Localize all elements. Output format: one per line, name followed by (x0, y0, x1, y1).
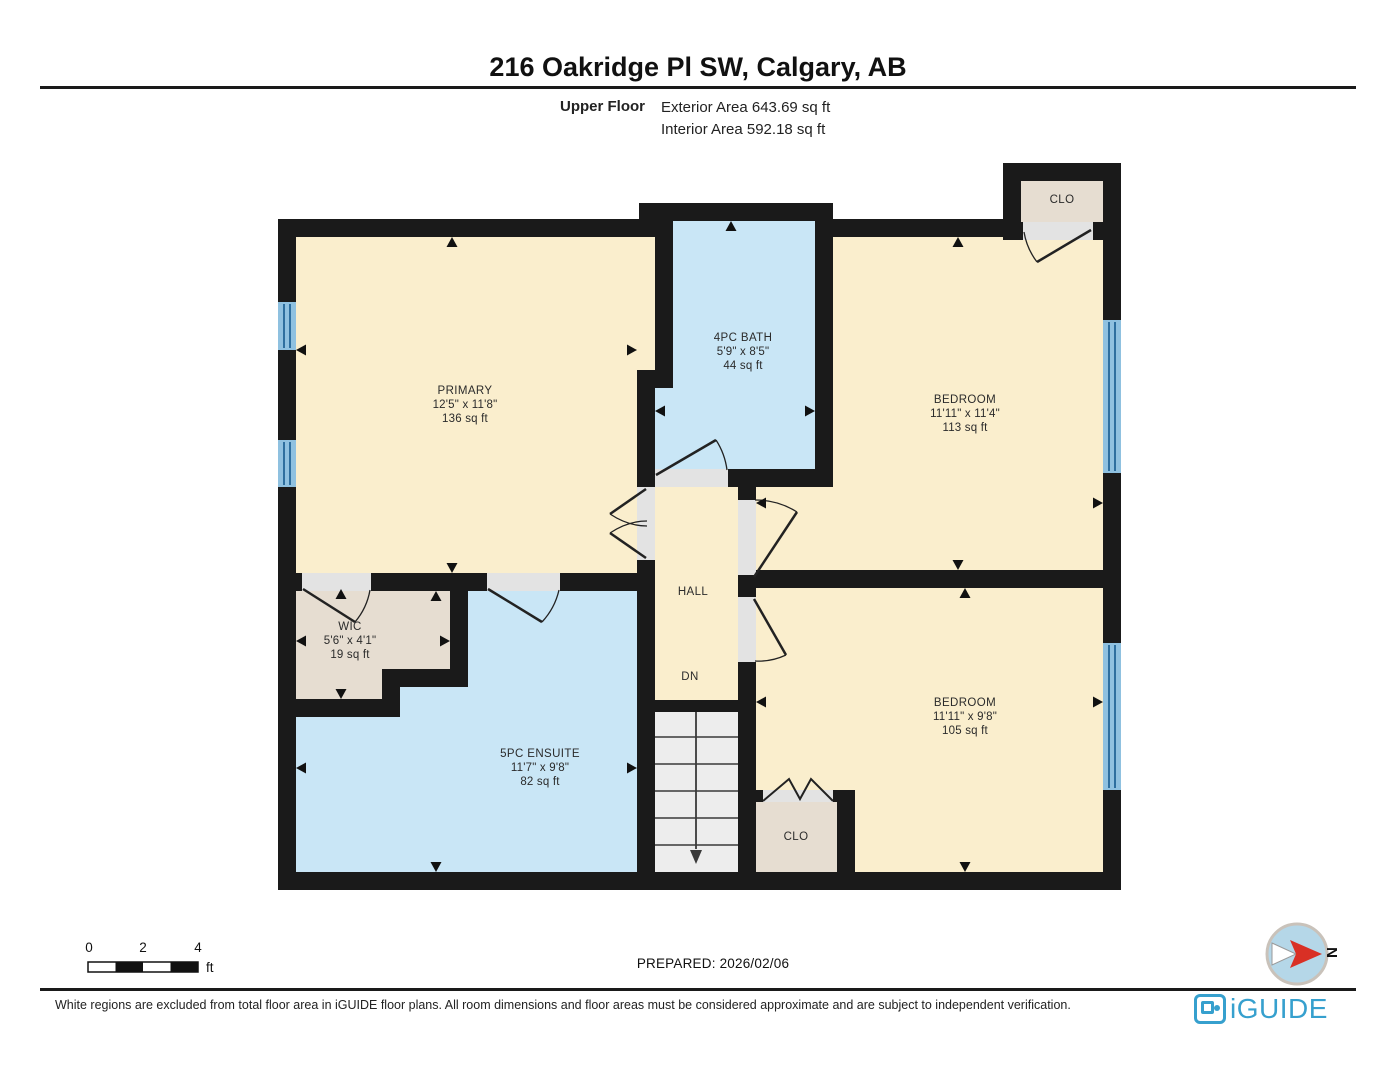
scale-tick-2: 2 (139, 940, 147, 955)
window-icon (278, 302, 296, 350)
closet-top-label: CLO (1050, 194, 1075, 206)
compass-icon (1267, 924, 1327, 984)
scale-tick-0: 0 (85, 940, 93, 955)
staircase (655, 700, 738, 872)
scale-bar (88, 962, 198, 972)
floor-plan-drawing (0, 0, 1396, 1080)
window-icon (1103, 320, 1121, 473)
floor-plan-page: 216 Oakridge Pl SW, Calgary, AB Upper Fl… (0, 0, 1396, 1080)
room-label-primary: PRIMARY12'5" x 11'8"136 sq ft (433, 384, 498, 426)
compass-north-label: N (1323, 947, 1340, 958)
window-icon (278, 440, 296, 487)
camera-icon (1194, 994, 1226, 1024)
closet-bottom-label: CLO (784, 831, 809, 843)
room-label-wic: WIC5'6" x 4'1"19 sq ft (324, 620, 376, 662)
prepared-date: PREPARED: 2026/02/06 (637, 956, 789, 971)
brand-logo: iGUIDE (1194, 993, 1328, 1025)
room-label-bedroom-1: BEDROOM11'11" x 11'4"113 sq ft (930, 393, 1000, 435)
window-icon (1103, 643, 1121, 790)
scale-tick-4: 4 (194, 940, 202, 955)
room-label-bath: 4PC BATH5'9" x 8'5"44 sq ft (714, 331, 773, 373)
footer-divider (40, 988, 1356, 991)
hall-label: HALL (678, 586, 708, 598)
brand-name: iGUIDE (1230, 993, 1328, 1025)
room-label-ensuite: 5PC ENSUITE11'7" x 9'8"82 sq ft (500, 747, 580, 789)
room-label-bedroom-2: BEDROOM11'11" x 9'8"105 sq ft (933, 696, 997, 738)
scale-unit: ft (206, 960, 214, 975)
footer-disclaimer: White regions are excluded from total fl… (55, 998, 1071, 1012)
stairs-down-label: DN (681, 671, 698, 683)
